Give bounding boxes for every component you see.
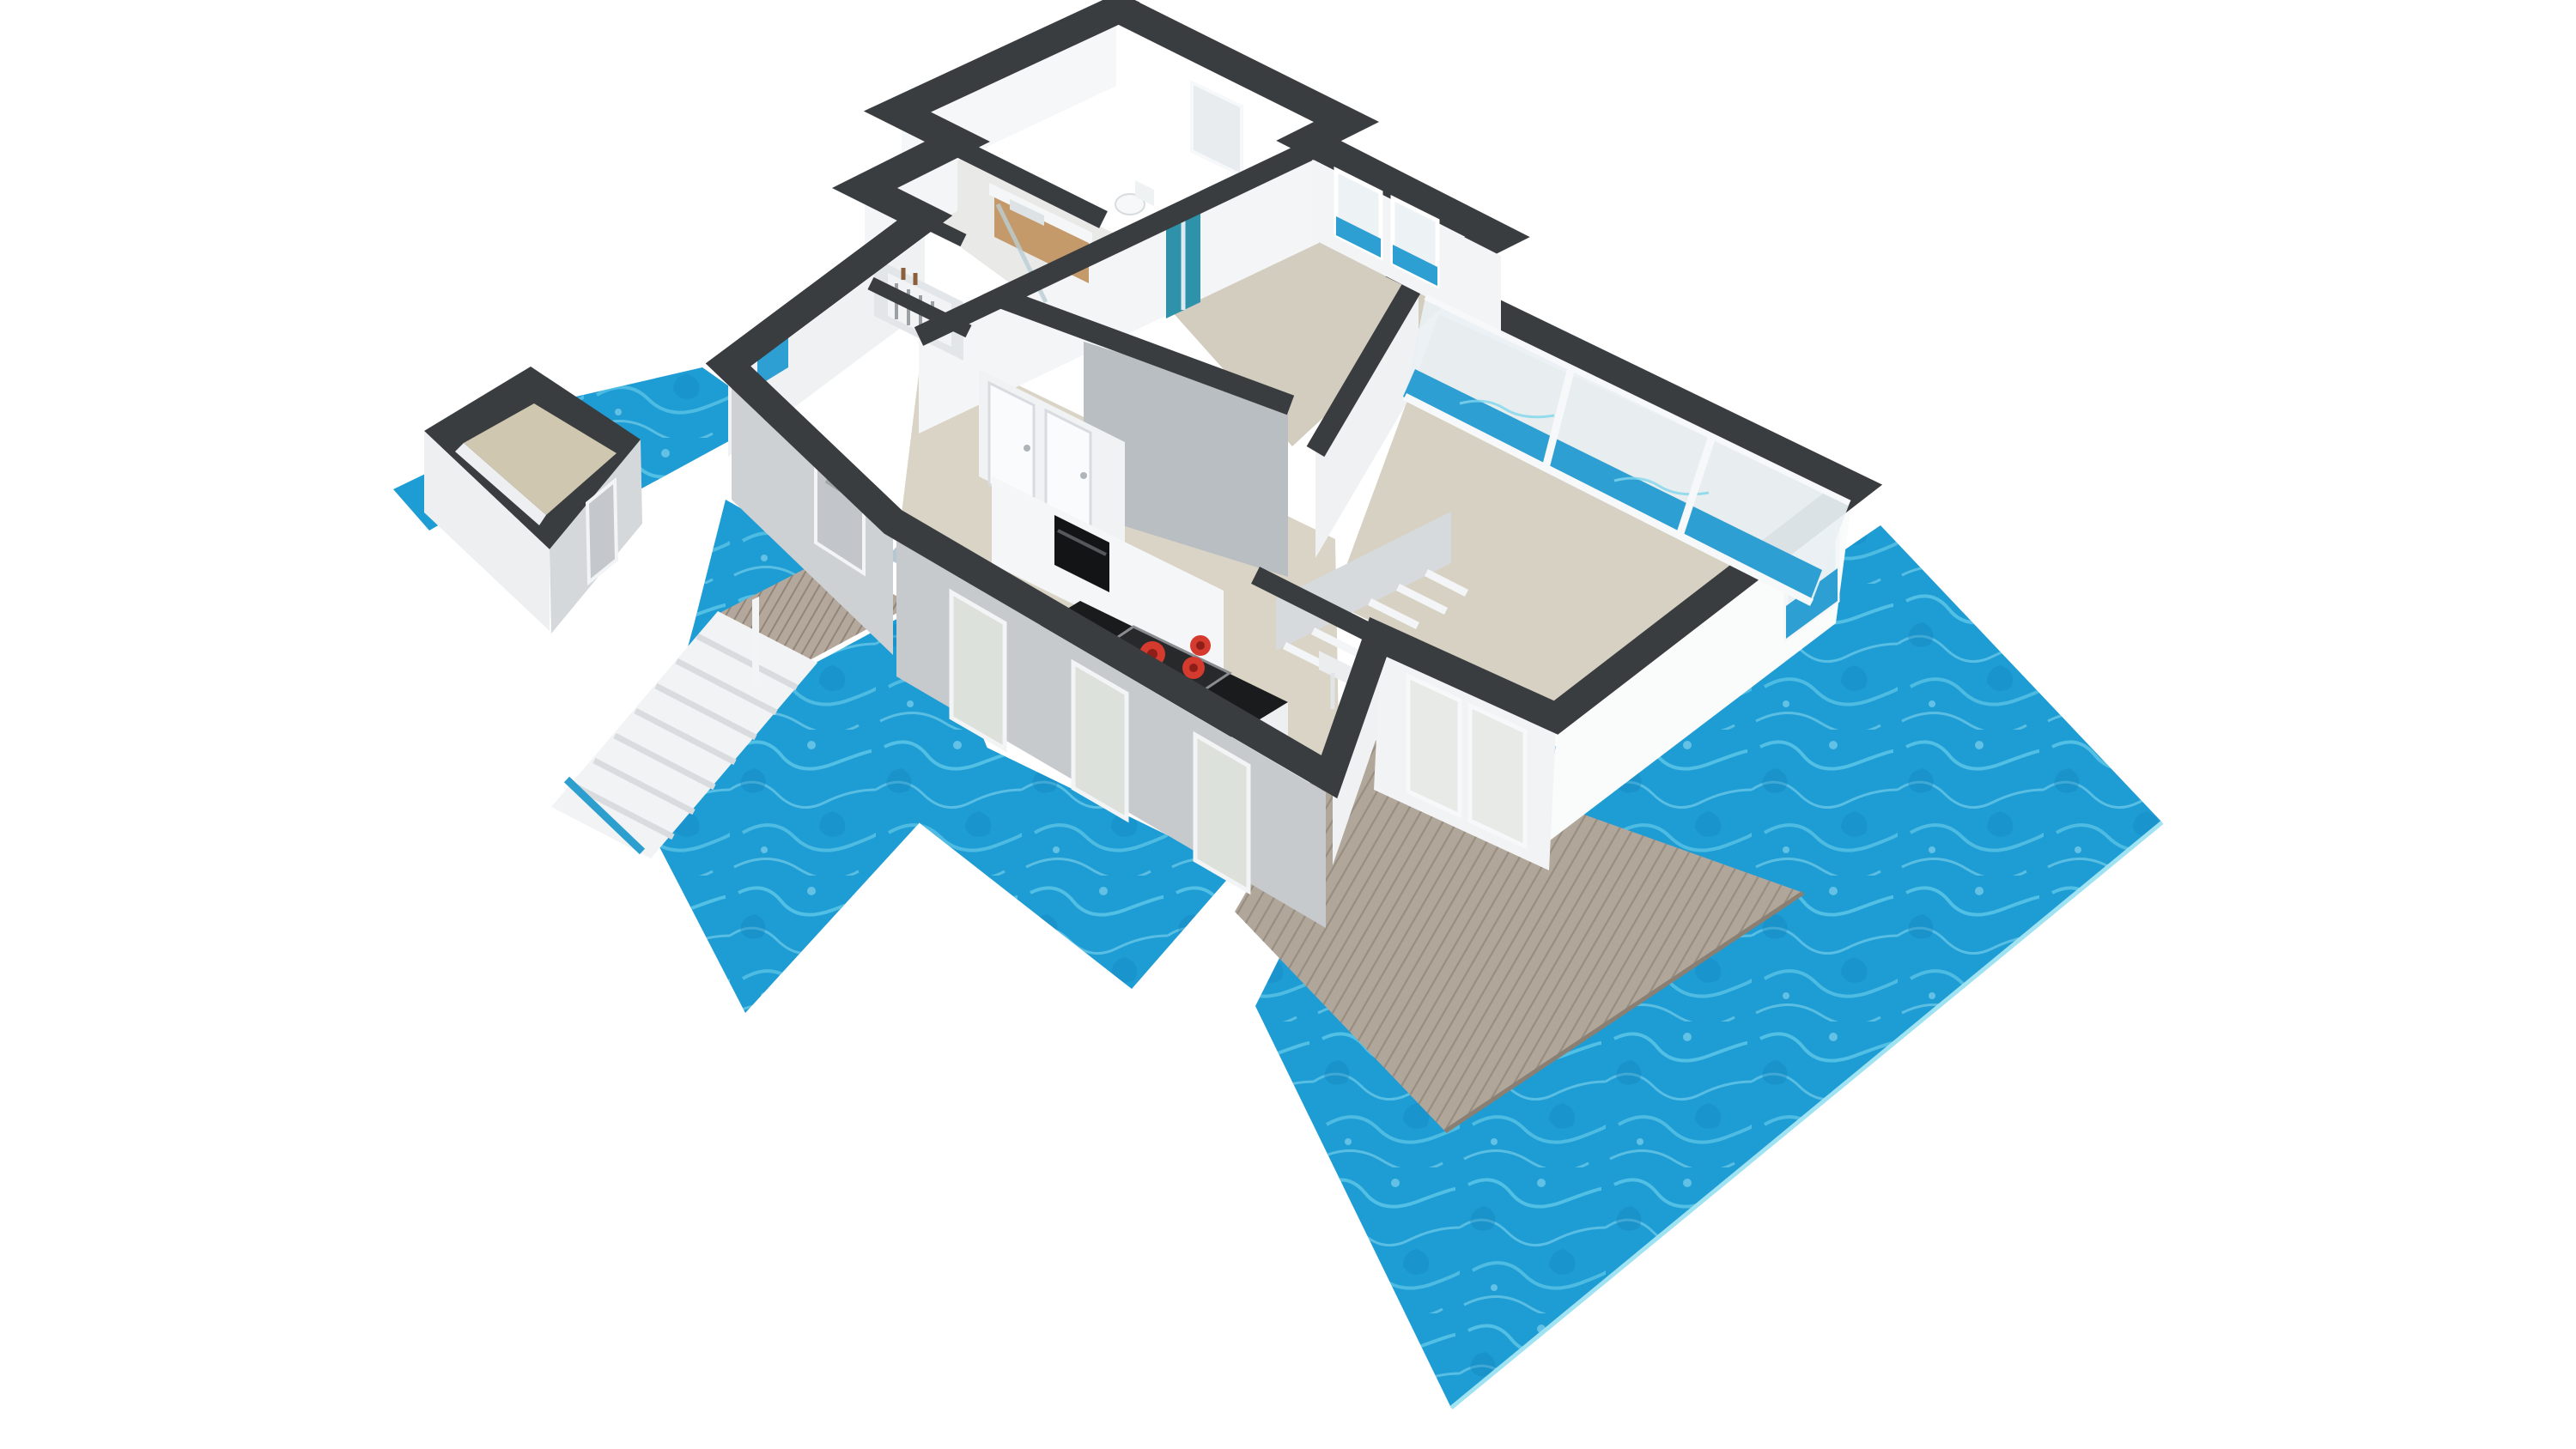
burner-center [1189,664,1198,672]
door-handle [1080,472,1087,479]
door-handle [1024,445,1030,452]
deck-slider-glass-left [1408,676,1460,815]
bathroom-mirror-panel [1192,82,1242,175]
nw-window-frame [752,597,759,686]
burner-center [1196,641,1205,650]
deck-slider-glass-right [1470,706,1525,846]
floorplan-render [0,0,2576,1449]
floorplan-stage [0,0,2576,1449]
